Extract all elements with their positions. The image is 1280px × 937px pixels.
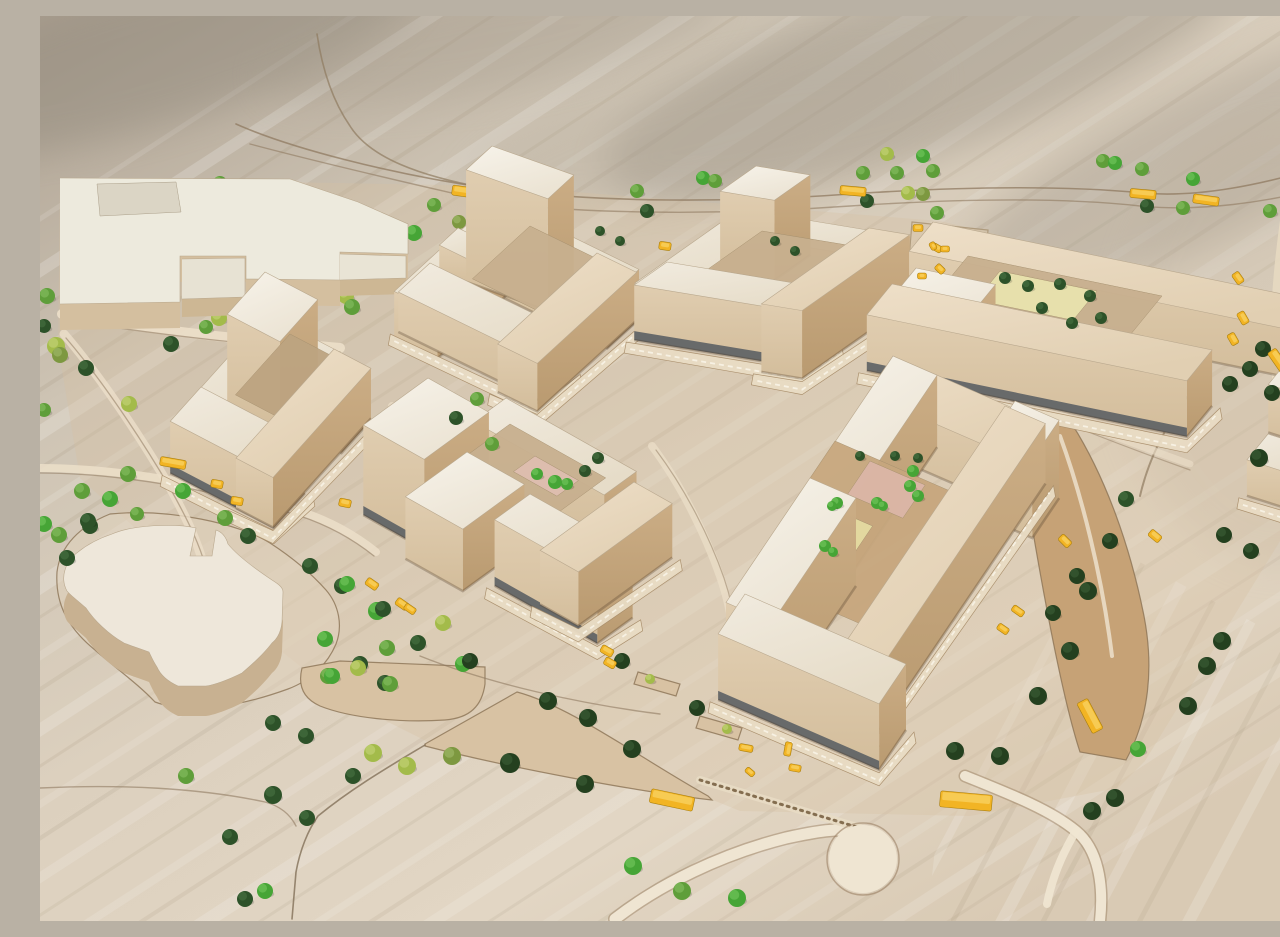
model-scene-canvas [40,16,1280,921]
architectural-model-photograph [40,16,1280,921]
